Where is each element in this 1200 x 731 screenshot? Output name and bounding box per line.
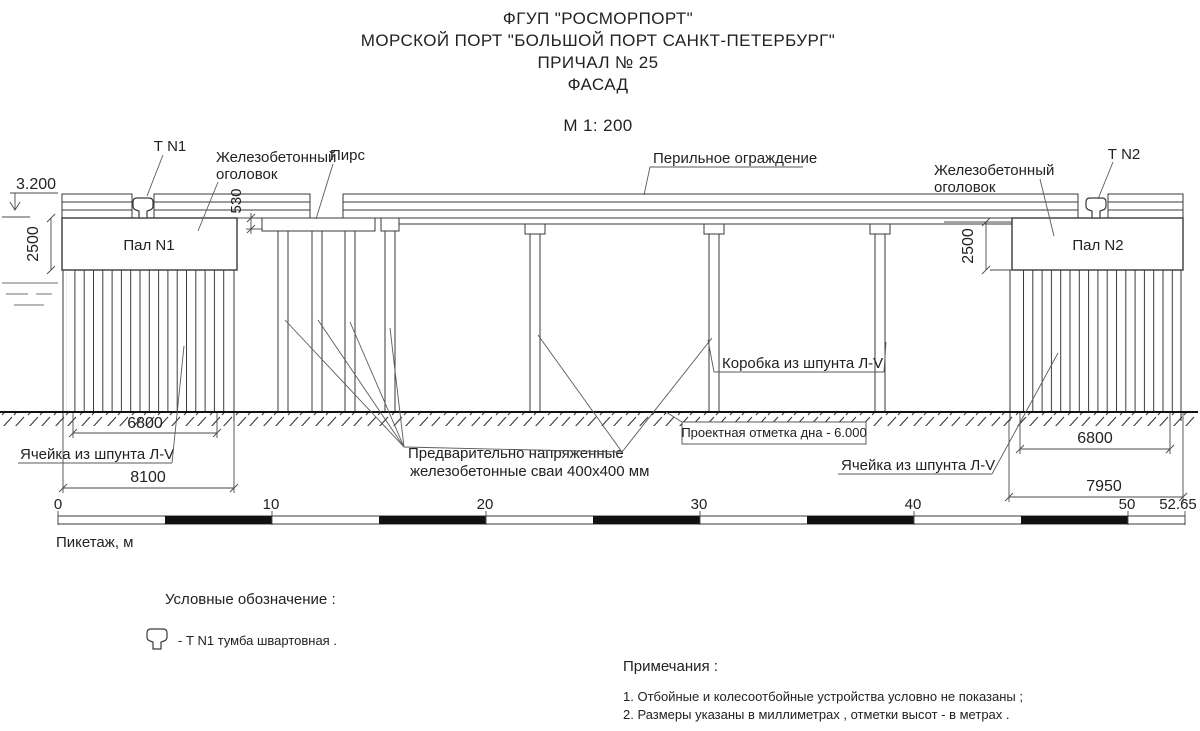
pal-n2: Пал N2 <box>1010 198 1183 421</box>
notes-heading: Примечания : <box>623 658 718 675</box>
pal-n1-label: Пал N1 <box>123 237 174 254</box>
dim-pal2-height: 2500 <box>944 218 1012 274</box>
title-port: МОРСКОЙ ПОРТ "БОЛЬШОЙ ПОРТ САНКТ-ПЕТЕРБУ… <box>361 31 835 50</box>
elevation-mark: 3.200 <box>2 176 58 217</box>
annotation-railing: Перильное ограждение <box>644 150 817 195</box>
cap-right-line1: Железобетонный <box>934 162 1054 179</box>
scale-tick-end: 52.65 <box>1159 496 1197 513</box>
railing-label: Перильное ограждение <box>653 150 817 167</box>
scale-bar: 0 10 20 30 40 50 52.65 Пикетаж, м <box>54 496 1197 551</box>
project-bottom-label: Проектная отметка дна - 6.000 <box>681 425 866 440</box>
pier-label: Пирс <box>330 147 366 164</box>
scale-bar-segment <box>165 516 272 524</box>
t-n2-label: Т N2 <box>1108 146 1141 163</box>
drawing-scale: М 1: 200 <box>563 116 632 135</box>
cap-right-line2: оголовок <box>934 179 996 196</box>
pal-n2-label: Пал N2 <box>1072 237 1123 254</box>
note-item-1: 1. Отбойные и колесоотбойные устройства … <box>623 689 1023 704</box>
pier-column-cap-1 <box>381 218 399 231</box>
elevation-value: 3.200 <box>16 176 56 193</box>
dim-pal1-height-value: 2500 <box>25 226 42 262</box>
cell-left-label: Ячейка из шпунта Л-V <box>20 446 174 463</box>
annotation-t-n2: Т N2 <box>1098 146 1140 199</box>
legend: Условные обозначение : - Т N1 тумба швар… <box>147 591 337 649</box>
drawing-sheet: ФГУП "РОСМОРПОРТ" МОРСКОЙ ПОРТ "БОЛЬШОЙ … <box>0 0 1200 731</box>
annotation-piles: Предварительно напряженные железобетонны… <box>285 320 712 480</box>
cap-left-line2: оголовок <box>216 166 278 183</box>
pal-n1-sheet-piles <box>66 270 232 412</box>
pier-beam <box>262 218 375 231</box>
deck-columns <box>525 224 890 412</box>
dim-cell1-outer-value: 8100 <box>130 469 166 486</box>
dim-pal1-height: 2500 <box>25 214 55 274</box>
scale-bar-segment <box>593 516 700 524</box>
dim-cell2-outer-value: 7950 <box>1086 478 1122 495</box>
dim-pal2-height-value: 2500 <box>960 228 977 264</box>
bollard-t-n1 <box>133 198 153 218</box>
dim-cell1-inner-value: 6800 <box>127 415 163 432</box>
bollard-t-n2 <box>1086 198 1106 218</box>
dim-step-value: 530 <box>228 188 245 213</box>
scale-tick-50: 50 <box>1119 496 1136 513</box>
scale-tick-0: 0 <box>54 496 62 513</box>
cap-left-line1: Железобетонный <box>216 149 336 166</box>
t-n1-label: Т N1 <box>154 138 187 155</box>
pal-n2-sheet-piles <box>1016 270 1180 412</box>
facade-drawing: ФГУП "РОСМОРПОРТ" МОРСКОЙ ПОРТ "БОЛЬШОЙ … <box>0 0 1200 731</box>
note-item-2: 2. Размеры указаны в миллиметрах , отмет… <box>623 707 1010 722</box>
pier-structure <box>262 218 1012 412</box>
notes: Примечания : 1. Отбойные и колесоотбойны… <box>623 658 1023 722</box>
dim-cell2-inner-value: 6800 <box>1077 430 1113 447</box>
piles-label-line2: железобетонные сваи 400х400 мм <box>410 463 649 480</box>
scale-tick-10: 10 <box>263 496 280 513</box>
legend-bollard-icon <box>147 629 167 649</box>
scale-tick-20: 20 <box>477 496 494 513</box>
seabed-line <box>0 412 1198 426</box>
annotation-t-n1: Т N1 <box>147 138 186 196</box>
dim-cell2-outer: 7950 <box>1005 413 1187 502</box>
pal-n1: Пал N1 <box>62 198 237 421</box>
scale-unit-label: Пикетаж, м <box>56 534 133 551</box>
title-berth: ПРИЧАЛ № 25 <box>538 53 659 72</box>
sheet-box-label: Коробка из шпунта Л-V <box>722 355 883 372</box>
legend-bollard-label: - Т N1 тумба швартовная . <box>178 633 337 648</box>
water-line <box>2 283 58 305</box>
title-org: ФГУП "РОСМОРПОРТ" <box>503 9 693 28</box>
scale-bar-segment <box>807 516 914 524</box>
scale-tick-30: 30 <box>691 496 708 513</box>
cell-right-label: Ячейка из шпунта Л-V <box>841 457 995 474</box>
annotation-sheet-box: Коробка из шпунта Л-V <box>708 340 886 372</box>
title-view: ФАСАД <box>568 75 629 94</box>
scale-bar-segment <box>1021 516 1128 524</box>
legend-heading: Условные обозначение : <box>165 591 336 608</box>
scale-bar-segment <box>379 516 486 524</box>
title-block: ФГУП "РОСМОРПОРТ" МОРСКОЙ ПОРТ "БОЛЬШОЙ … <box>361 9 835 135</box>
scale-tick-40: 40 <box>905 496 922 513</box>
